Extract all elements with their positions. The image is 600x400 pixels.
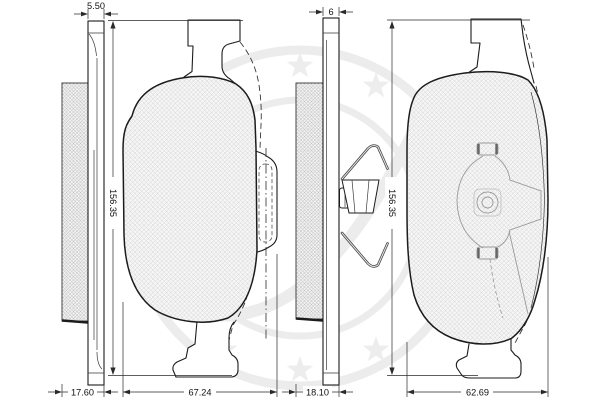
pad1-width-label: 67.24: [189, 388, 212, 398]
pad2-height-label: 156.35: [387, 189, 397, 217]
pad2-width-label: 62.69: [466, 388, 489, 398]
pad1-total-thickness-label: 17.60: [71, 388, 94, 398]
brake-pad-drawing: 5.50 156.35 17.60 67.24: [0, 0, 600, 400]
pad1-friction-edge: [62, 83, 88, 321]
pad2-plate-thickness-label: 6: [328, 7, 333, 17]
pad1-friction-face: [123, 76, 257, 322]
watermark-star: [287, 52, 314, 77]
pad1-plate-thickness-label: 5.50: [87, 1, 105, 11]
pad2-friction-face: [407, 72, 548, 344]
pad2-total-thickness-label: 18.10: [306, 388, 329, 398]
pad1-side-view: [62, 21, 104, 385]
spring-band: [342, 180, 379, 213]
pad2-friction-edge: [296, 83, 323, 319]
dim-pad1-plate-thickness: 5.50: [74, 1, 118, 19]
pad2-backplate-edge: [323, 18, 339, 385]
pad1-bottom-lug: [173, 321, 238, 377]
dim-pad1-total-thickness: 17.60: [48, 384, 118, 398]
watermark-star: [287, 356, 314, 381]
pad1-height-label: 156.35: [108, 189, 118, 217]
dim-pad2-plate-thickness: 6: [309, 6, 353, 17]
technical-drawing-canvas: 5.50 156.35 17.60 67.24: [0, 0, 600, 400]
pad1-backplate-edge: [88, 21, 104, 385]
